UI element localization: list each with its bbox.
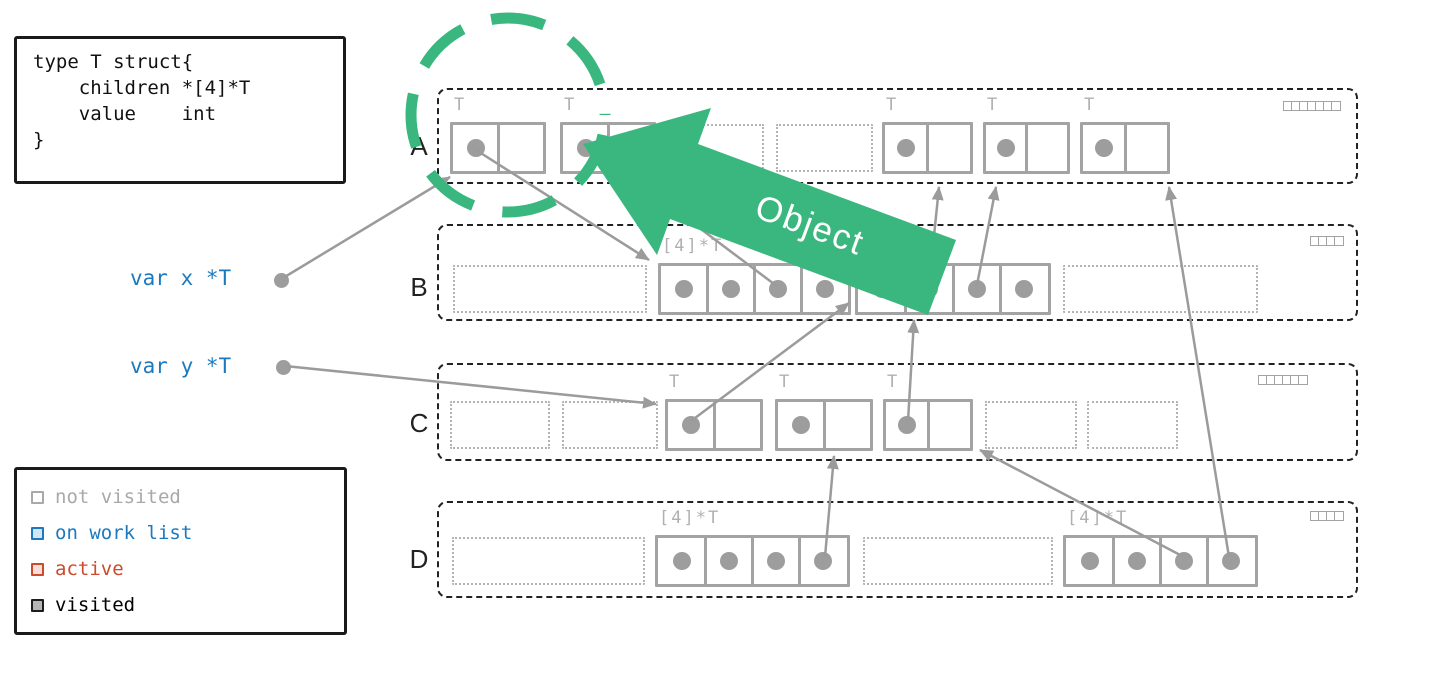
span-label-B: B (406, 273, 432, 301)
free-slot (676, 124, 764, 172)
stack-var-label-x: var x *T (130, 266, 231, 290)
cell-divider (926, 125, 929, 171)
object-type-label: T (669, 372, 681, 392)
object-type-label: [4]*T (662, 236, 723, 256)
object-type-label: T (1084, 95, 1096, 115)
legend-swatch (31, 491, 44, 504)
object-type-label: [4]*T (659, 508, 720, 528)
stack-var-label-y: var y *T (130, 354, 231, 378)
bitmap-cell (1334, 511, 1344, 521)
pointer-field-dot (769, 280, 787, 298)
bitmap-cell (1334, 236, 1344, 246)
pointer-lines (283, 150, 1229, 557)
free-slot (452, 537, 645, 585)
pointer-field-dot (968, 280, 986, 298)
pointer-field-dot (673, 552, 691, 570)
span-bitmap (1283, 101, 1341, 111)
legend-label: active (55, 558, 124, 581)
pointer-arrow-var-x-to-A1 (283, 177, 450, 278)
object-type-label: [4]*T (1067, 508, 1128, 528)
cell-divider (798, 538, 801, 584)
pointer-field-dot (792, 416, 810, 434)
span-label-A: A (406, 132, 432, 160)
cell-divider (497, 125, 500, 171)
free-slot (450, 401, 550, 449)
pointer-field-dot (577, 139, 595, 157)
legend-swatch (31, 563, 44, 576)
span-bitmap (1258, 375, 1308, 385)
cell-divider (999, 266, 1002, 312)
cell-divider (1124, 125, 1127, 171)
legend-swatch (31, 599, 44, 612)
span-label-C: C (406, 409, 432, 437)
span-bitmap (1310, 511, 1344, 521)
object-type-label: T (987, 95, 999, 115)
free-slot (985, 401, 1077, 449)
object-type-label: T (779, 372, 791, 392)
pointer-field-dot (720, 552, 738, 570)
object-type-label: T (887, 372, 899, 392)
gc-state-legend: not visitedon work listactivevisited (14, 467, 347, 635)
legend-label: visited (55, 594, 135, 617)
cell-divider (952, 266, 955, 312)
slide-canvas: type T struct{ children *[4]*T value int… (0, 0, 1440, 675)
pointer-field-dot (682, 416, 700, 434)
object-type-label: T (886, 95, 898, 115)
legend-label: not visited (55, 486, 181, 509)
cell-divider (927, 402, 930, 448)
object-type-label: T (564, 95, 576, 115)
free-slot (562, 401, 658, 449)
pointer-field-dot (722, 280, 740, 298)
pointer-field-dot (467, 139, 485, 157)
bitmap-cell (1298, 375, 1308, 385)
cell-divider (704, 538, 707, 584)
cell-divider (904, 266, 907, 312)
span-label-D: D (406, 545, 432, 573)
legend-swatch (31, 527, 44, 540)
free-slot (453, 265, 647, 313)
span-bitmap (1310, 236, 1344, 246)
free-slot (776, 124, 873, 172)
stack-var-pointer-dot (274, 273, 289, 288)
cell-divider (1112, 538, 1115, 584)
cell-divider (751, 538, 754, 584)
cell-divider (607, 125, 610, 171)
bitmap-cell (1331, 101, 1341, 111)
cell-divider (753, 266, 756, 312)
legend-item: on work list (31, 522, 330, 545)
cell-divider (823, 402, 826, 448)
stack-var-pointer-dot (276, 360, 291, 375)
pointer-field-dot (1095, 139, 1113, 157)
pointer-field-dot (898, 416, 916, 434)
type-definition-box: type T struct{ children *[4]*T value int… (14, 36, 346, 184)
pointer-field-dot (873, 280, 891, 298)
object-type-label: [4]*T (859, 236, 920, 256)
cell-divider (1025, 125, 1028, 171)
pointer-field-dot (816, 280, 834, 298)
cell-divider (713, 402, 716, 448)
cell-divider (800, 266, 803, 312)
free-slot (1087, 401, 1178, 449)
pointer-field-dot (1175, 552, 1193, 570)
pointer-field-dot (1081, 552, 1099, 570)
pointer-field-dot (767, 552, 785, 570)
cell-divider (1159, 538, 1162, 584)
free-slot (863, 537, 1053, 585)
legend-item: not visited (31, 486, 330, 509)
legend-item: active (31, 558, 330, 581)
object-type-label: T (454, 95, 466, 115)
legend-label: on work list (55, 522, 192, 545)
cell-divider (706, 266, 709, 312)
go-code: type T struct{ children *[4]*T value int… (17, 39, 343, 163)
cell-divider (1206, 538, 1209, 584)
legend-item: visited (31, 594, 330, 617)
free-slot (1063, 265, 1258, 313)
pointer-field-dot (1128, 552, 1146, 570)
legend-items: not visitedon work listactivevisited (17, 470, 344, 633)
